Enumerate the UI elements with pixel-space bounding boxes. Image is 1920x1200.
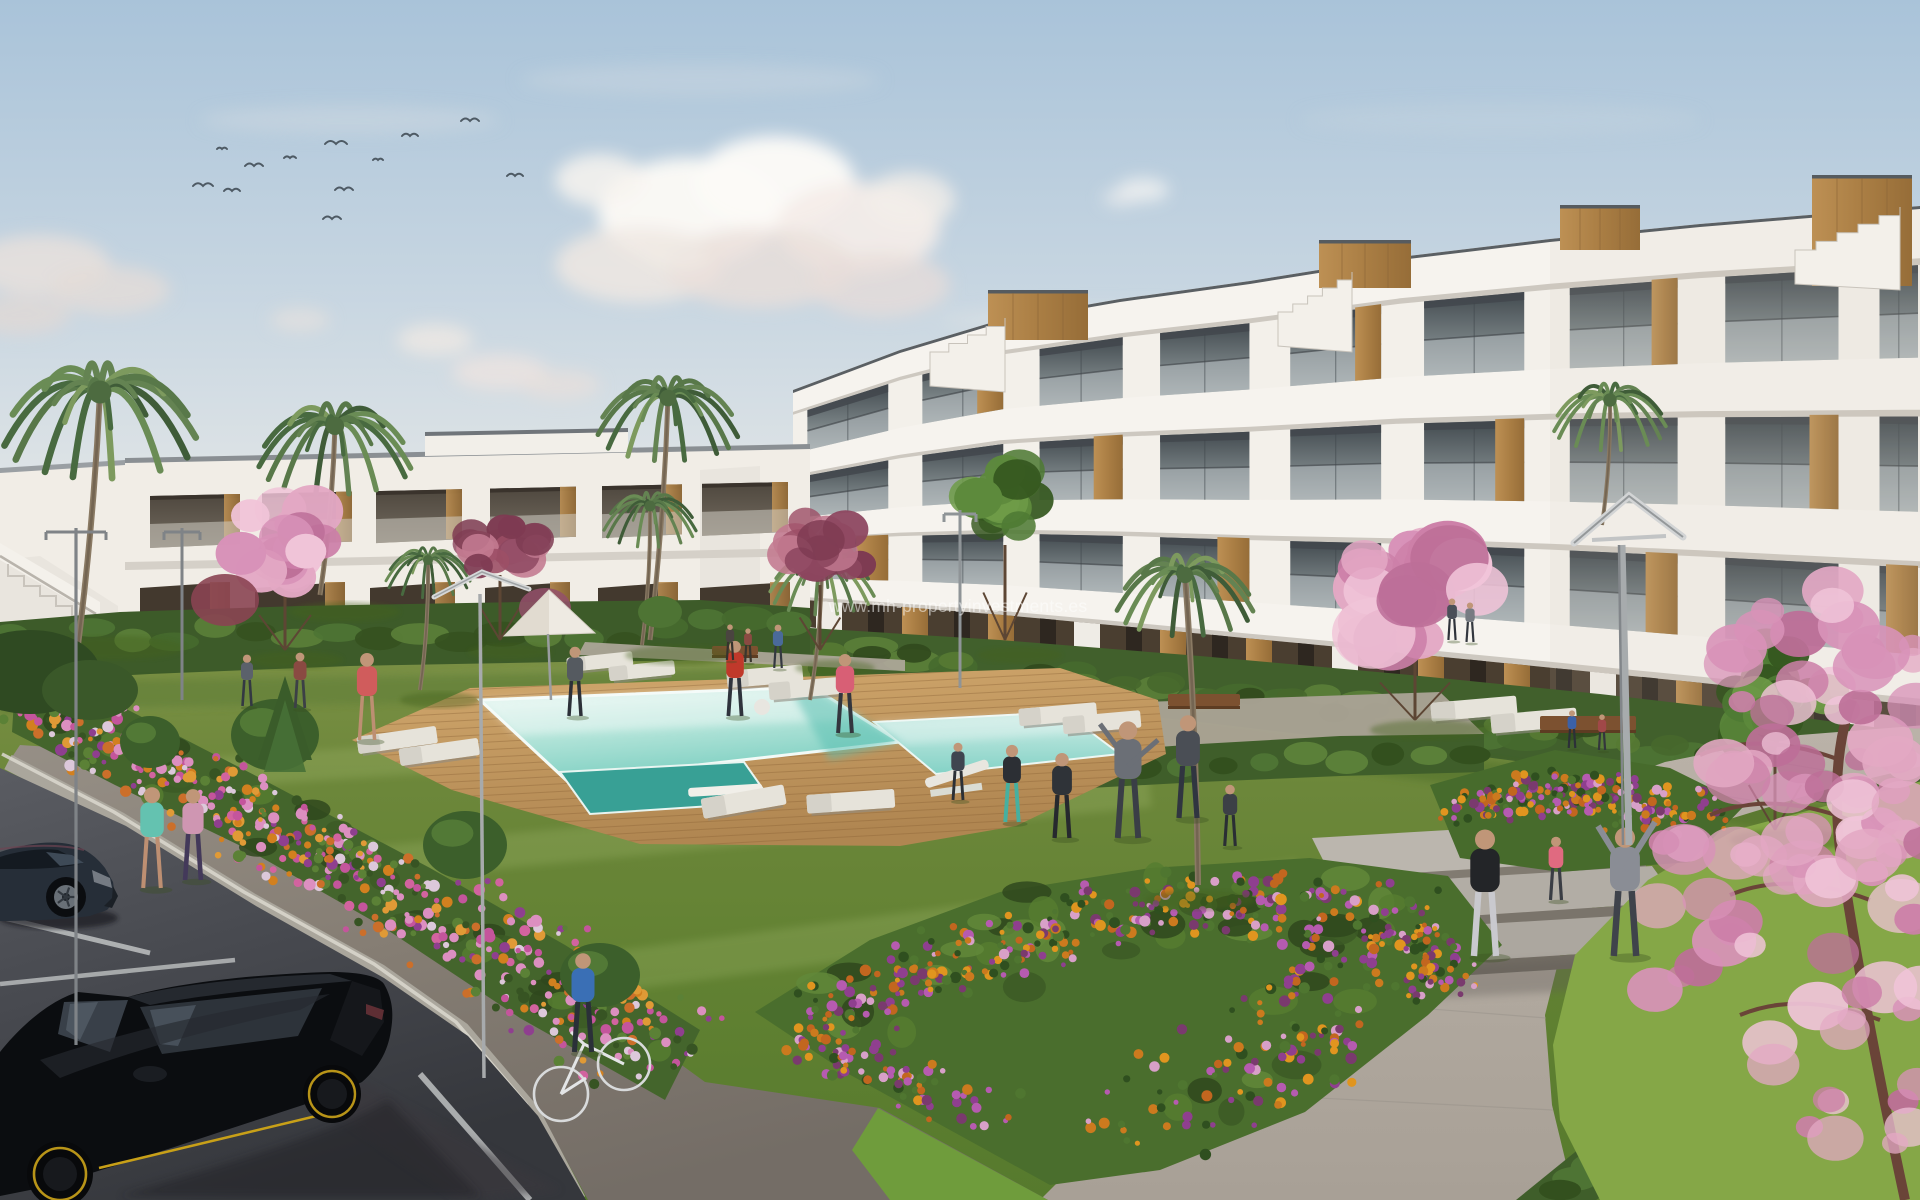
svg-text:www.mh-propertyinvestments.es: www.mh-propertyinvestments.es [828, 596, 1088, 616]
